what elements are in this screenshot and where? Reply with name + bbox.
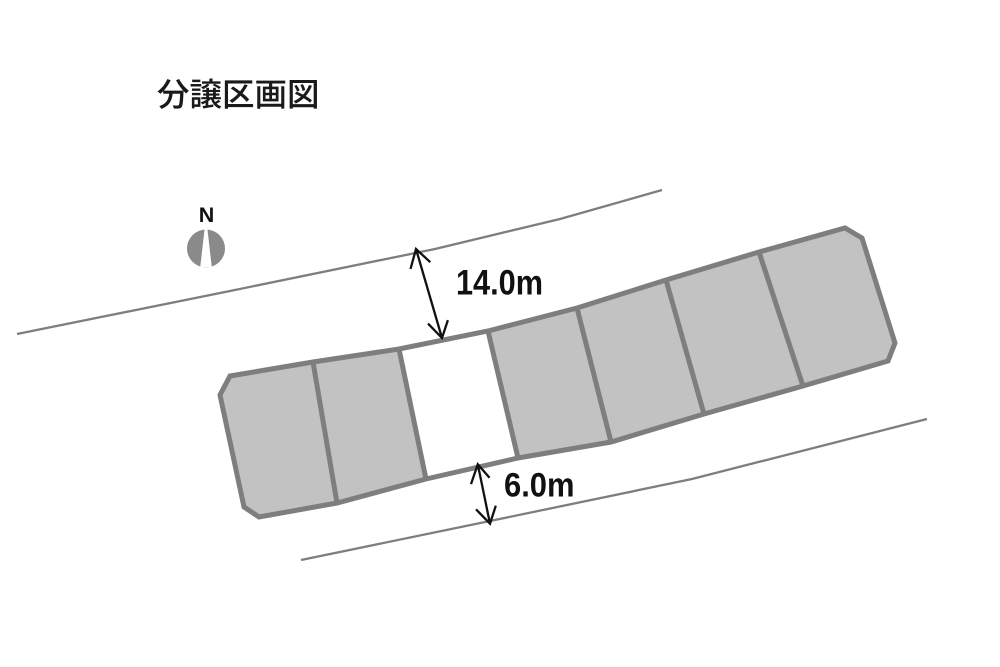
svg-text:6.0m: 6.0m xyxy=(504,466,575,504)
svg-text:14.0m: 14.0m xyxy=(456,263,543,303)
svg-text:N: N xyxy=(199,203,215,227)
